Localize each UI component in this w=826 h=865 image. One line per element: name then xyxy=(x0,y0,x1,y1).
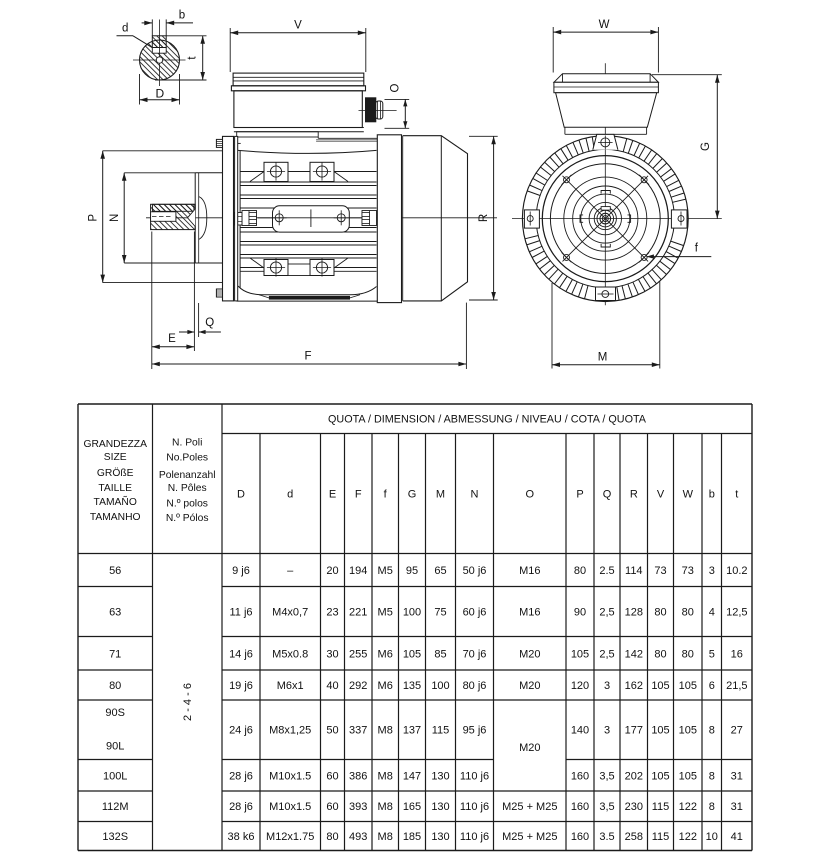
svg-text:G: G xyxy=(700,142,712,151)
svg-text:110 j6: 110 j6 xyxy=(460,801,489,813)
svg-text:M12x1.75: M12x1.75 xyxy=(266,831,314,843)
svg-text:115: 115 xyxy=(652,801,670,813)
svg-text:M: M xyxy=(598,351,608,363)
svg-text:O: O xyxy=(526,488,535,500)
svg-text:SIZE: SIZE xyxy=(104,452,127,463)
svg-text:3: 3 xyxy=(709,565,715,577)
svg-text:M4x0,7: M4x0,7 xyxy=(272,606,308,618)
svg-text:110 j6: 110 j6 xyxy=(460,770,489,782)
svg-text:M25 + M25: M25 + M25 xyxy=(502,831,557,843)
svg-text:N: N xyxy=(109,214,121,222)
svg-text:38 k6: 38 k6 xyxy=(228,831,255,843)
svg-text:41: 41 xyxy=(731,831,743,843)
svg-text:140: 140 xyxy=(571,724,589,736)
svg-text:90: 90 xyxy=(574,606,586,618)
svg-text:292: 292 xyxy=(349,680,367,692)
svg-text:135: 135 xyxy=(403,680,421,692)
svg-text:28 j6: 28 j6 xyxy=(229,770,253,782)
svg-text:N.º Pólos: N.º Pólos xyxy=(166,513,209,524)
svg-text:21,5: 21,5 xyxy=(726,680,747,692)
svg-text:80: 80 xyxy=(326,831,338,843)
svg-text:M16: M16 xyxy=(519,606,540,618)
svg-text:50: 50 xyxy=(326,724,338,736)
svg-text:Q: Q xyxy=(603,488,612,500)
svg-text:b: b xyxy=(179,10,185,22)
svg-text:80: 80 xyxy=(682,606,694,618)
svg-text:105: 105 xyxy=(679,724,697,736)
svg-text:R: R xyxy=(478,214,490,222)
svg-text:t: t xyxy=(735,488,738,500)
svg-text:TAILLE: TAILLE xyxy=(98,483,132,494)
svg-text:M5x0.8: M5x0.8 xyxy=(272,648,308,660)
svg-text:M10x1.5: M10x1.5 xyxy=(269,770,311,782)
svg-text:147: 147 xyxy=(403,770,421,782)
svg-text:V: V xyxy=(294,20,302,32)
svg-text:D: D xyxy=(237,488,245,500)
svg-text:95: 95 xyxy=(406,565,418,577)
svg-text:5: 5 xyxy=(709,648,715,660)
svg-text:185: 185 xyxy=(403,831,421,843)
svg-text:8: 8 xyxy=(709,770,715,782)
svg-text:162: 162 xyxy=(625,680,643,692)
svg-text:20: 20 xyxy=(326,565,338,577)
svg-text:110 j6: 110 j6 xyxy=(460,831,489,843)
svg-text:60: 60 xyxy=(326,770,338,782)
svg-text:E: E xyxy=(168,333,176,345)
svg-text:14 j6: 14 j6 xyxy=(229,648,253,660)
svg-text:6: 6 xyxy=(709,680,715,692)
svg-text:105: 105 xyxy=(651,680,669,692)
svg-text:105: 105 xyxy=(679,680,697,692)
svg-text:R: R xyxy=(630,488,638,500)
svg-text:N. Pôles: N. Pôles xyxy=(168,483,207,494)
svg-text:8: 8 xyxy=(709,724,715,736)
svg-text:90L: 90L xyxy=(106,740,124,752)
svg-text:M25 + M25: M25 + M25 xyxy=(502,801,557,813)
svg-text:M20: M20 xyxy=(519,742,540,754)
svg-text:337: 337 xyxy=(349,724,367,736)
svg-text:132S: 132S xyxy=(102,831,128,843)
svg-text:100: 100 xyxy=(403,606,421,618)
svg-text:122: 122 xyxy=(679,831,697,843)
svg-text:120: 120 xyxy=(571,680,589,692)
svg-text:28 j6: 28 j6 xyxy=(229,801,253,813)
svg-text:73: 73 xyxy=(654,565,666,577)
svg-text:D: D xyxy=(155,87,164,101)
svg-text:221: 221 xyxy=(349,606,367,618)
svg-text:M5: M5 xyxy=(378,565,393,577)
svg-text:160: 160 xyxy=(571,770,589,782)
svg-text:F: F xyxy=(355,488,362,500)
svg-text:2 - 4 - 6: 2 - 4 - 6 xyxy=(182,683,194,721)
svg-text:80: 80 xyxy=(654,606,666,618)
svg-text:M6: M6 xyxy=(378,680,393,692)
svg-text:Polenanzahl: Polenanzahl xyxy=(159,470,216,481)
svg-text:30: 30 xyxy=(326,648,338,660)
svg-text:100: 100 xyxy=(431,680,449,692)
svg-text:TAMAÑO: TAMAÑO xyxy=(94,495,137,508)
svg-text:255: 255 xyxy=(349,648,367,660)
svg-text:112M: 112M xyxy=(102,801,129,813)
svg-text:G: G xyxy=(408,488,417,500)
svg-text:165: 165 xyxy=(403,801,421,813)
svg-text:M: M xyxy=(436,488,445,500)
svg-text:130: 130 xyxy=(431,831,449,843)
svg-text:M8: M8 xyxy=(378,831,393,843)
svg-text:3.5: 3.5 xyxy=(599,831,614,843)
svg-text:24 j6: 24 j6 xyxy=(229,724,253,736)
svg-text:80: 80 xyxy=(109,680,121,692)
svg-text:2.5: 2.5 xyxy=(599,565,614,577)
svg-text:122: 122 xyxy=(679,801,697,813)
svg-text:80 j6: 80 j6 xyxy=(463,680,487,692)
svg-text:115: 115 xyxy=(432,724,450,736)
svg-text:63: 63 xyxy=(109,606,121,618)
svg-text:3,5: 3,5 xyxy=(599,801,614,813)
svg-text:19 j6: 19 j6 xyxy=(229,680,253,692)
svg-text:202: 202 xyxy=(625,770,643,782)
svg-text:F: F xyxy=(304,350,311,362)
svg-text:M10x1.5: M10x1.5 xyxy=(269,801,311,813)
svg-text:N. Poli: N. Poli xyxy=(172,438,202,449)
svg-text:130: 130 xyxy=(431,770,449,782)
svg-text:M20: M20 xyxy=(519,680,540,692)
svg-text:386: 386 xyxy=(349,770,367,782)
svg-text:GRANDEZZA: GRANDEZZA xyxy=(83,439,147,450)
svg-text:142: 142 xyxy=(625,648,643,660)
svg-text:56: 56 xyxy=(109,565,121,577)
svg-text:90S: 90S xyxy=(105,707,125,719)
svg-text:d: d xyxy=(287,488,293,500)
svg-text:12,5: 12,5 xyxy=(726,606,747,618)
svg-text:M20: M20 xyxy=(519,648,540,660)
svg-text:W: W xyxy=(599,19,610,31)
svg-text:31: 31 xyxy=(731,801,743,813)
svg-text:114: 114 xyxy=(625,565,643,577)
svg-text:M8: M8 xyxy=(378,801,393,813)
svg-text:95 j6: 95 j6 xyxy=(463,724,487,736)
svg-text:3,5: 3,5 xyxy=(599,770,614,782)
svg-text:27: 27 xyxy=(731,724,743,736)
svg-text:N: N xyxy=(471,488,479,500)
svg-text:105: 105 xyxy=(651,724,669,736)
svg-text:80: 80 xyxy=(574,565,586,577)
svg-text:M8x1,25: M8x1,25 xyxy=(269,724,311,736)
svg-text:16: 16 xyxy=(731,648,743,660)
svg-text:E: E xyxy=(329,488,336,500)
svg-text:d: d xyxy=(122,23,128,35)
svg-text:177: 177 xyxy=(625,724,643,736)
svg-text:70 j6: 70 j6 xyxy=(463,648,487,660)
svg-text:40: 40 xyxy=(326,680,338,692)
svg-text:80: 80 xyxy=(654,648,666,660)
svg-text:O: O xyxy=(390,83,402,92)
svg-text:105: 105 xyxy=(679,770,697,782)
svg-text:N.º polos: N.º polos xyxy=(166,499,208,510)
svg-text:105: 105 xyxy=(403,648,421,660)
svg-text:105: 105 xyxy=(571,648,589,660)
svg-text:100L: 100L xyxy=(103,770,127,782)
svg-text:M16: M16 xyxy=(519,565,540,577)
svg-text:73: 73 xyxy=(682,565,694,577)
svg-text:3: 3 xyxy=(604,724,610,736)
svg-text:160: 160 xyxy=(571,801,589,813)
svg-text:2,5: 2,5 xyxy=(599,648,614,660)
svg-text:10: 10 xyxy=(706,831,718,843)
svg-text:80: 80 xyxy=(682,648,694,660)
svg-text:GRÖßE: GRÖßE xyxy=(97,467,134,479)
svg-text:160: 160 xyxy=(571,831,589,843)
svg-text:194: 194 xyxy=(349,565,367,577)
svg-text:493: 493 xyxy=(349,831,367,843)
svg-text:75: 75 xyxy=(434,606,446,618)
svg-text:QUOTA / DIMENSION / ABMESSUNG: QUOTA / DIMENSION / ABMESSUNG / NIVEAU /… xyxy=(328,414,647,426)
svg-text:128: 128 xyxy=(625,606,643,618)
svg-text:M6x1: M6x1 xyxy=(277,680,304,692)
svg-text:M8: M8 xyxy=(378,724,393,736)
svg-text:2,5: 2,5 xyxy=(599,606,614,618)
svg-text:3: 3 xyxy=(604,680,610,692)
svg-text:71: 71 xyxy=(109,648,121,660)
svg-text:V: V xyxy=(657,488,665,500)
svg-text:11 j6: 11 j6 xyxy=(229,606,252,618)
svg-text:9 j6: 9 j6 xyxy=(232,565,250,577)
svg-text:M6: M6 xyxy=(378,648,393,660)
svg-text:10.2: 10.2 xyxy=(726,565,747,577)
svg-text:137: 137 xyxy=(403,724,421,736)
svg-text:P: P xyxy=(576,488,583,500)
svg-text:P: P xyxy=(88,214,100,222)
svg-text:b: b xyxy=(709,488,715,500)
svg-text:W: W xyxy=(683,488,694,500)
svg-text:TAMANHO: TAMANHO xyxy=(90,512,141,523)
svg-text:23: 23 xyxy=(326,606,338,618)
svg-text:85: 85 xyxy=(434,648,446,660)
svg-text:130: 130 xyxy=(431,801,449,813)
svg-text:115: 115 xyxy=(652,831,670,843)
svg-text:393: 393 xyxy=(349,801,367,813)
svg-text:60 j6: 60 j6 xyxy=(463,606,487,618)
svg-text:Q: Q xyxy=(205,317,214,329)
svg-text:105: 105 xyxy=(651,770,669,782)
svg-text:50 j6: 50 j6 xyxy=(463,565,487,577)
svg-text:No.Poles: No.Poles xyxy=(166,452,208,463)
svg-text:31: 31 xyxy=(731,770,743,782)
svg-text:M8: M8 xyxy=(378,770,393,782)
svg-text:258: 258 xyxy=(625,831,643,843)
svg-text:60: 60 xyxy=(326,801,338,813)
svg-text:65: 65 xyxy=(434,565,446,577)
svg-text:M5: M5 xyxy=(378,606,393,618)
svg-text:4: 4 xyxy=(709,606,715,618)
svg-text:8: 8 xyxy=(709,801,715,813)
svg-text:–: – xyxy=(287,565,294,577)
svg-text:230: 230 xyxy=(625,801,643,813)
